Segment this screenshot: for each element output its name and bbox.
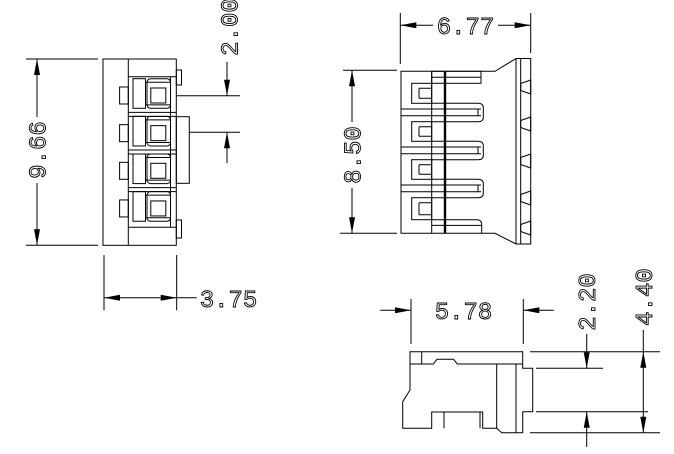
technical-drawing-canvas: 9.66 2.00 3.75 6.77 8.50 5.78 — [0, 0, 674, 454]
dimension-side-width: 6.77 — [400, 13, 530, 64]
dimension-bottom-height: 4.40 — [633, 268, 660, 433]
arrowhead-up — [640, 352, 646, 368]
contact-square — [151, 163, 166, 178]
front-divider-3 — [128, 188, 176, 192]
contact-square — [151, 201, 166, 216]
side-retainer-block-2 — [412, 122, 432, 142]
finger-bar — [432, 103, 484, 121]
bottom-view — [403, 352, 533, 433]
wall-tooth-5 — [521, 221, 531, 235]
arrowhead-down — [34, 229, 40, 245]
finger-inner-line — [401, 147, 481, 154]
side-retainer-block-1 — [412, 83, 432, 103]
contact-cavity-3 — [120, 154, 171, 184]
dim-front-width-label: 3.75 — [200, 288, 258, 315]
cavity-strip — [133, 192, 146, 222]
finger-inner-line — [401, 185, 481, 192]
finger-inner-line — [401, 109, 481, 116]
arrowhead-left — [400, 22, 416, 28]
block-outline — [412, 83, 432, 103]
cavity-strip — [133, 79, 146, 109]
side-finger-top — [432, 71, 481, 83]
arrowhead-up — [349, 70, 355, 86]
side-body-outline — [401, 59, 531, 245]
contact-square — [151, 88, 166, 103]
arrowhead-left — [523, 307, 539, 313]
dimension-front-pitch: 2.00 — [176, 0, 245, 163]
block-outline — [412, 122, 432, 142]
arrowhead-down — [224, 80, 230, 96]
contact-square — [151, 126, 166, 141]
extension-lines — [104, 255, 177, 310]
dimension-side-height: 8.50 — [340, 70, 397, 233]
wall-tooth-1 — [521, 80, 531, 94]
dim-side-height-label: 8.50 — [342, 126, 369, 184]
technical-drawing-page: 9.66 2.00 3.75 6.77 8.50 5.78 — [0, 0, 674, 454]
cavity-bar-lines — [146, 195, 171, 218]
finger-bar — [432, 179, 484, 197]
side-finger-2 — [401, 103, 483, 121]
contact-cavity-1 — [120, 79, 171, 109]
block-outline — [412, 160, 432, 180]
bottom-top-band-with-bump — [410, 359, 523, 364]
front-bottom-lock-tab — [176, 220, 181, 238]
arrowhead-left — [104, 295, 120, 301]
block-notch — [419, 127, 432, 137]
side-finger-4 — [401, 179, 483, 197]
arrowhead-right — [161, 295, 177, 301]
cavity-bar-lines — [146, 120, 171, 143]
finger-bar — [432, 220, 482, 234]
front-divider-2 — [128, 150, 176, 154]
arrowhead-up — [584, 412, 590, 428]
cavity-bump — [120, 200, 129, 217]
bottom-leader-lines — [530, 352, 660, 433]
block-notch — [419, 203, 432, 215]
dimension-front-height: 9.66 — [26, 59, 98, 245]
front-side-step — [176, 117, 189, 184]
dim-front-height-label: 9.66 — [27, 121, 54, 179]
wall-tooth-3 — [521, 154, 531, 168]
side-retainer-block-3 — [412, 160, 432, 180]
arrowhead-right — [515, 22, 531, 28]
dim-bottom-height-label: 4.40 — [633, 268, 660, 326]
leader-lines — [530, 352, 660, 433]
bottom-notch-lines — [444, 412, 480, 428]
arrowhead-down — [349, 217, 355, 233]
arrowhead-down — [584, 352, 590, 368]
cavity-strip — [133, 154, 146, 184]
arrowhead-right — [395, 307, 411, 313]
cavity-bump — [120, 87, 129, 104]
leader-lines — [176, 96, 240, 133]
wall-tooth-2 — [521, 117, 531, 131]
cavity-bump — [120, 125, 129, 142]
arrowhead-up — [34, 59, 40, 75]
front-divider-1 — [128, 112, 176, 116]
side-finger-3 — [401, 141, 483, 159]
side-wall-lines — [516, 59, 521, 245]
contact-cavity-2 — [120, 116, 171, 146]
arrowhead-up — [224, 132, 230, 148]
dimension-front-width: 3.75 — [104, 255, 257, 315]
block-outline — [412, 198, 432, 220]
cavity-bump — [120, 162, 129, 179]
side-view — [401, 59, 531, 245]
cavity-bar-lines — [146, 158, 171, 181]
dim-front-pitch-label: 2.00 — [219, 0, 246, 56]
block-notch — [419, 165, 432, 175]
dimension-bottom-step: 2.20 — [576, 273, 603, 447]
finger-bar — [432, 141, 484, 159]
arrowhead-down — [640, 417, 646, 433]
dimension-bottom-width: 5.78 — [380, 299, 553, 344]
dim-bottom-step-label: 2.20 — [576, 273, 603, 331]
contact-cavity-4 — [120, 192, 171, 222]
front-top-lock-tab — [176, 70, 181, 85]
block-notch — [419, 88, 432, 98]
dim-bottom-width-label: 5.78 — [435, 300, 493, 327]
side-finger-bottom — [432, 220, 482, 234]
dim-side-width-label: 6.77 — [437, 15, 495, 42]
cavity-bar-lines — [146, 82, 171, 105]
front-view — [103, 59, 189, 245]
wall-tooth-4 — [521, 191, 531, 205]
side-retainer-block-4 — [412, 198, 432, 220]
cavity-strip — [133, 116, 146, 146]
